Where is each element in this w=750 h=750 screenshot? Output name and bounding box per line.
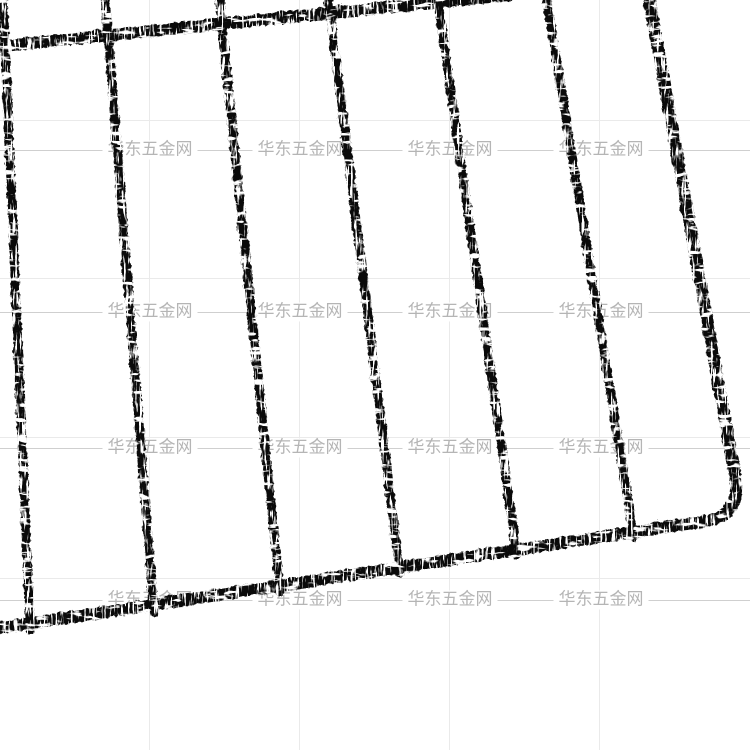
rack-wire-2 [104,0,153,611]
rack-wire-4 [327,0,399,572]
wire-rack-photo [0,0,750,750]
rack-wire-3 [218,0,279,591]
product-photo-canvas: 华东五金网华东五金网华东五金网华东五金网华东五金网华东五金网华东五金网华东五金网… [0,0,750,750]
rack-wire-1 [2,0,29,629]
rack-top-frame-bar [0,0,508,46]
rack-wire-5 [436,0,516,554]
rack-wire-6 [545,0,633,536]
